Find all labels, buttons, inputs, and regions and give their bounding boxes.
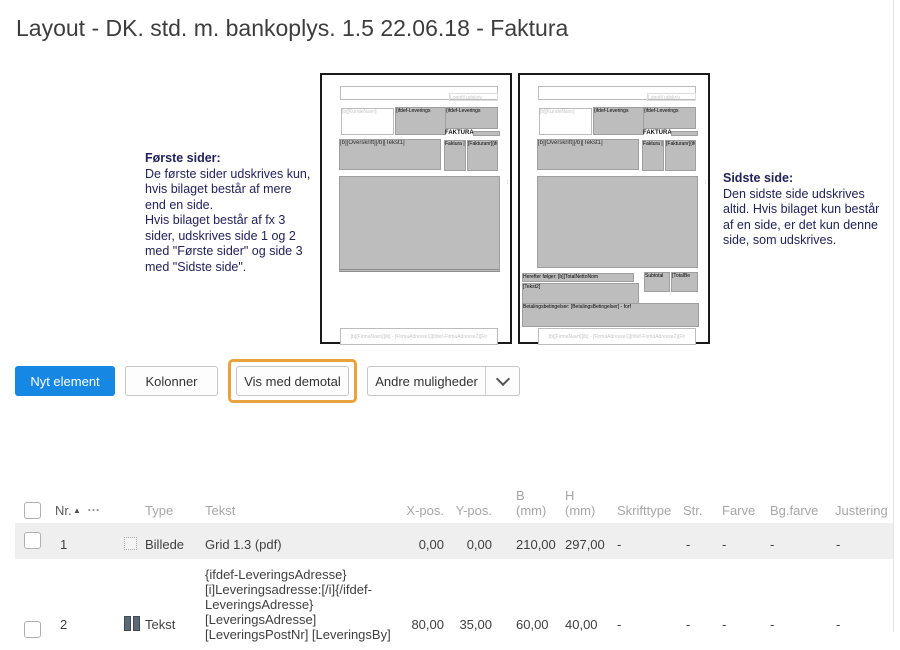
row-checkbox[interactable] <box>24 532 41 549</box>
first-pages-note: Første sider: De første sider udskrives … <box>145 151 329 275</box>
table-row[interactable] <box>15 560 893 650</box>
col-header-nr[interactable]: Nr. <box>55 503 72 518</box>
col-header-b-unit[interactable]: (mm) <box>516 503 546 518</box>
ifdef-leverings-box-1: {ifdef-Leverings <box>593 107 644 135</box>
footer-box: [b][FirmaNavn][/b] - [FirmaAdresse1]{ifd… <box>340 328 498 345</box>
chevron-down-icon <box>495 372 509 386</box>
last-page-note: Sidste side: Den sidste side udskrives a… <box>723 171 898 249</box>
herefter-box: Herefter følger: [b][TotalNettoNom <box>522 273 634 282</box>
kunde-box: [b][KundeNavn] <box>341 108 394 135</box>
cell-ypos: 0,00 <box>430 537 492 552</box>
column-menu-icon[interactable]: … <box>87 499 101 514</box>
cell-nr: 2 <box>60 617 67 632</box>
overflow-dots: ⋮ <box>504 179 511 185</box>
tekst2-box: [Tekst2] <box>522 283 639 305</box>
ifdef-leverings-box-2: {ifdef-Leverings <box>643 107 696 129</box>
kunde-box: [b][KundeNavn] <box>539 108 592 135</box>
col-header-h-unit[interactable]: (mm) <box>565 503 595 518</box>
cell-ypos: 35,00 <box>430 617 492 632</box>
col-header-bgcolor[interactable]: Bg.farve <box>770 503 818 518</box>
logo-hint-label: Logofil udskriv <box>647 93 696 101</box>
cell-font: - <box>617 537 621 552</box>
first-pages-body: De første sider udskrives kun, hvis bila… <box>145 167 329 276</box>
show-demo-values-button[interactable]: Vis med demotal <box>236 366 349 396</box>
cell-type: Tekst <box>145 617 175 632</box>
subtotal-box: Subtotal <box>644 272 670 292</box>
col-header-font[interactable]: Skrifttype <box>617 503 671 518</box>
col-header-ypos[interactable]: Y-pos. <box>430 503 492 518</box>
sort-ascending-icon[interactable]: ▲ <box>73 506 81 515</box>
cell-align: - <box>836 617 840 632</box>
ifdef-leverings-box-2: {ifdef-Leverings <box>445 107 498 129</box>
cell-color: - <box>722 537 726 552</box>
window-edge-divider <box>893 0 894 632</box>
cell-size: - <box>686 617 690 632</box>
cell-h: 297,00 <box>565 537 605 552</box>
col-header-align[interactable]: Justering <box>835 503 888 518</box>
overflow-dots: ⋮ <box>702 179 709 185</box>
cell-align: - <box>836 537 840 552</box>
preview-last-page: Logofil udskriv [b][KundeNavn] {ifdef-Le… <box>518 73 710 344</box>
cell-nr: 1 <box>60 537 67 552</box>
preview-first-pages: Logofil udskriv [b][KundeNavn] {ifdef-Le… <box>320 73 512 344</box>
faktura-bar <box>671 131 698 136</box>
cell-bgcolor: - <box>770 537 774 552</box>
last-page-body: Den sidste side udskrives altid. Hvis bi… <box>723 187 898 249</box>
footer-box: [b][FirmaNavn][/b] - [FirmaAdresse1]{ifd… <box>538 328 696 345</box>
totalbeloeb-box: [TotalBe <box>671 272 698 292</box>
lines-area <box>339 176 500 272</box>
cell-tekst: Grid 1.3 (pdf) <box>205 537 282 552</box>
image-type-icon <box>124 537 137 550</box>
faktura-heading: FAKTURA <box>643 130 672 136</box>
cell-h: 40,00 <box>565 617 598 632</box>
faktura-cell: Faktura | <box>642 140 664 171</box>
ifdef-leverings-box-1: {ifdef-Leverings <box>395 107 446 135</box>
more-options-caret[interactable] <box>486 378 519 384</box>
cell-font: - <box>617 617 621 632</box>
cell-bgcolor: - <box>770 617 774 632</box>
cell-color: - <box>722 617 726 632</box>
col-header-b[interactable]: B <box>516 488 525 503</box>
columns-button[interactable]: Kolonner <box>125 366 218 396</box>
last-page-heading: Sidste side: <box>723 171 898 187</box>
faktura-heading: FAKTURA <box>445 130 474 136</box>
new-element-button[interactable]: Nyt element <box>15 366 115 396</box>
cell-size: - <box>686 537 690 552</box>
page-title: Layout - DK. std. m. bankoplys. 1.5 22.0… <box>16 15 568 42</box>
fakturanr-cell: [Fakturanr]{ifd <box>665 140 696 171</box>
col-header-color[interactable]: Farve <box>722 503 755 518</box>
cell-type: Billede <box>145 537 184 552</box>
cell-b: 210,00 <box>516 537 556 552</box>
col-header-h[interactable]: H <box>565 488 574 503</box>
more-options-button[interactable]: Andre muligheder <box>367 366 520 396</box>
overskrift-box: [b][Overskrift][/b][Tekst1] <box>537 139 639 170</box>
fakturanr-cell: [Fakturanr]{ifd <box>467 140 498 171</box>
logo-hint-label: Logofil udskriv <box>449 93 498 101</box>
select-all-checkbox[interactable] <box>24 502 41 519</box>
col-header-type[interactable]: Type <box>145 503 173 518</box>
col-header-tekst[interactable]: Tekst <box>205 503 235 518</box>
col-header-size[interactable]: Str. <box>683 503 703 518</box>
cell-b: 60,00 <box>516 617 549 632</box>
first-pages-heading: Første sider: <box>145 151 329 167</box>
betalingsbetingelser-box: Betalingsbetingelser: [BetalingsBetingel… <box>522 303 699 327</box>
overskrift-box: [b][Overskrift][/b][Tekst1] <box>339 139 441 170</box>
faktura-cell: Faktura | <box>444 140 466 171</box>
lines-area <box>537 176 698 268</box>
row-checkbox[interactable] <box>24 621 41 638</box>
faktura-bar <box>473 131 500 136</box>
more-options-label: Andre muligheder <box>368 374 485 389</box>
text-type-icon <box>124 616 140 631</box>
